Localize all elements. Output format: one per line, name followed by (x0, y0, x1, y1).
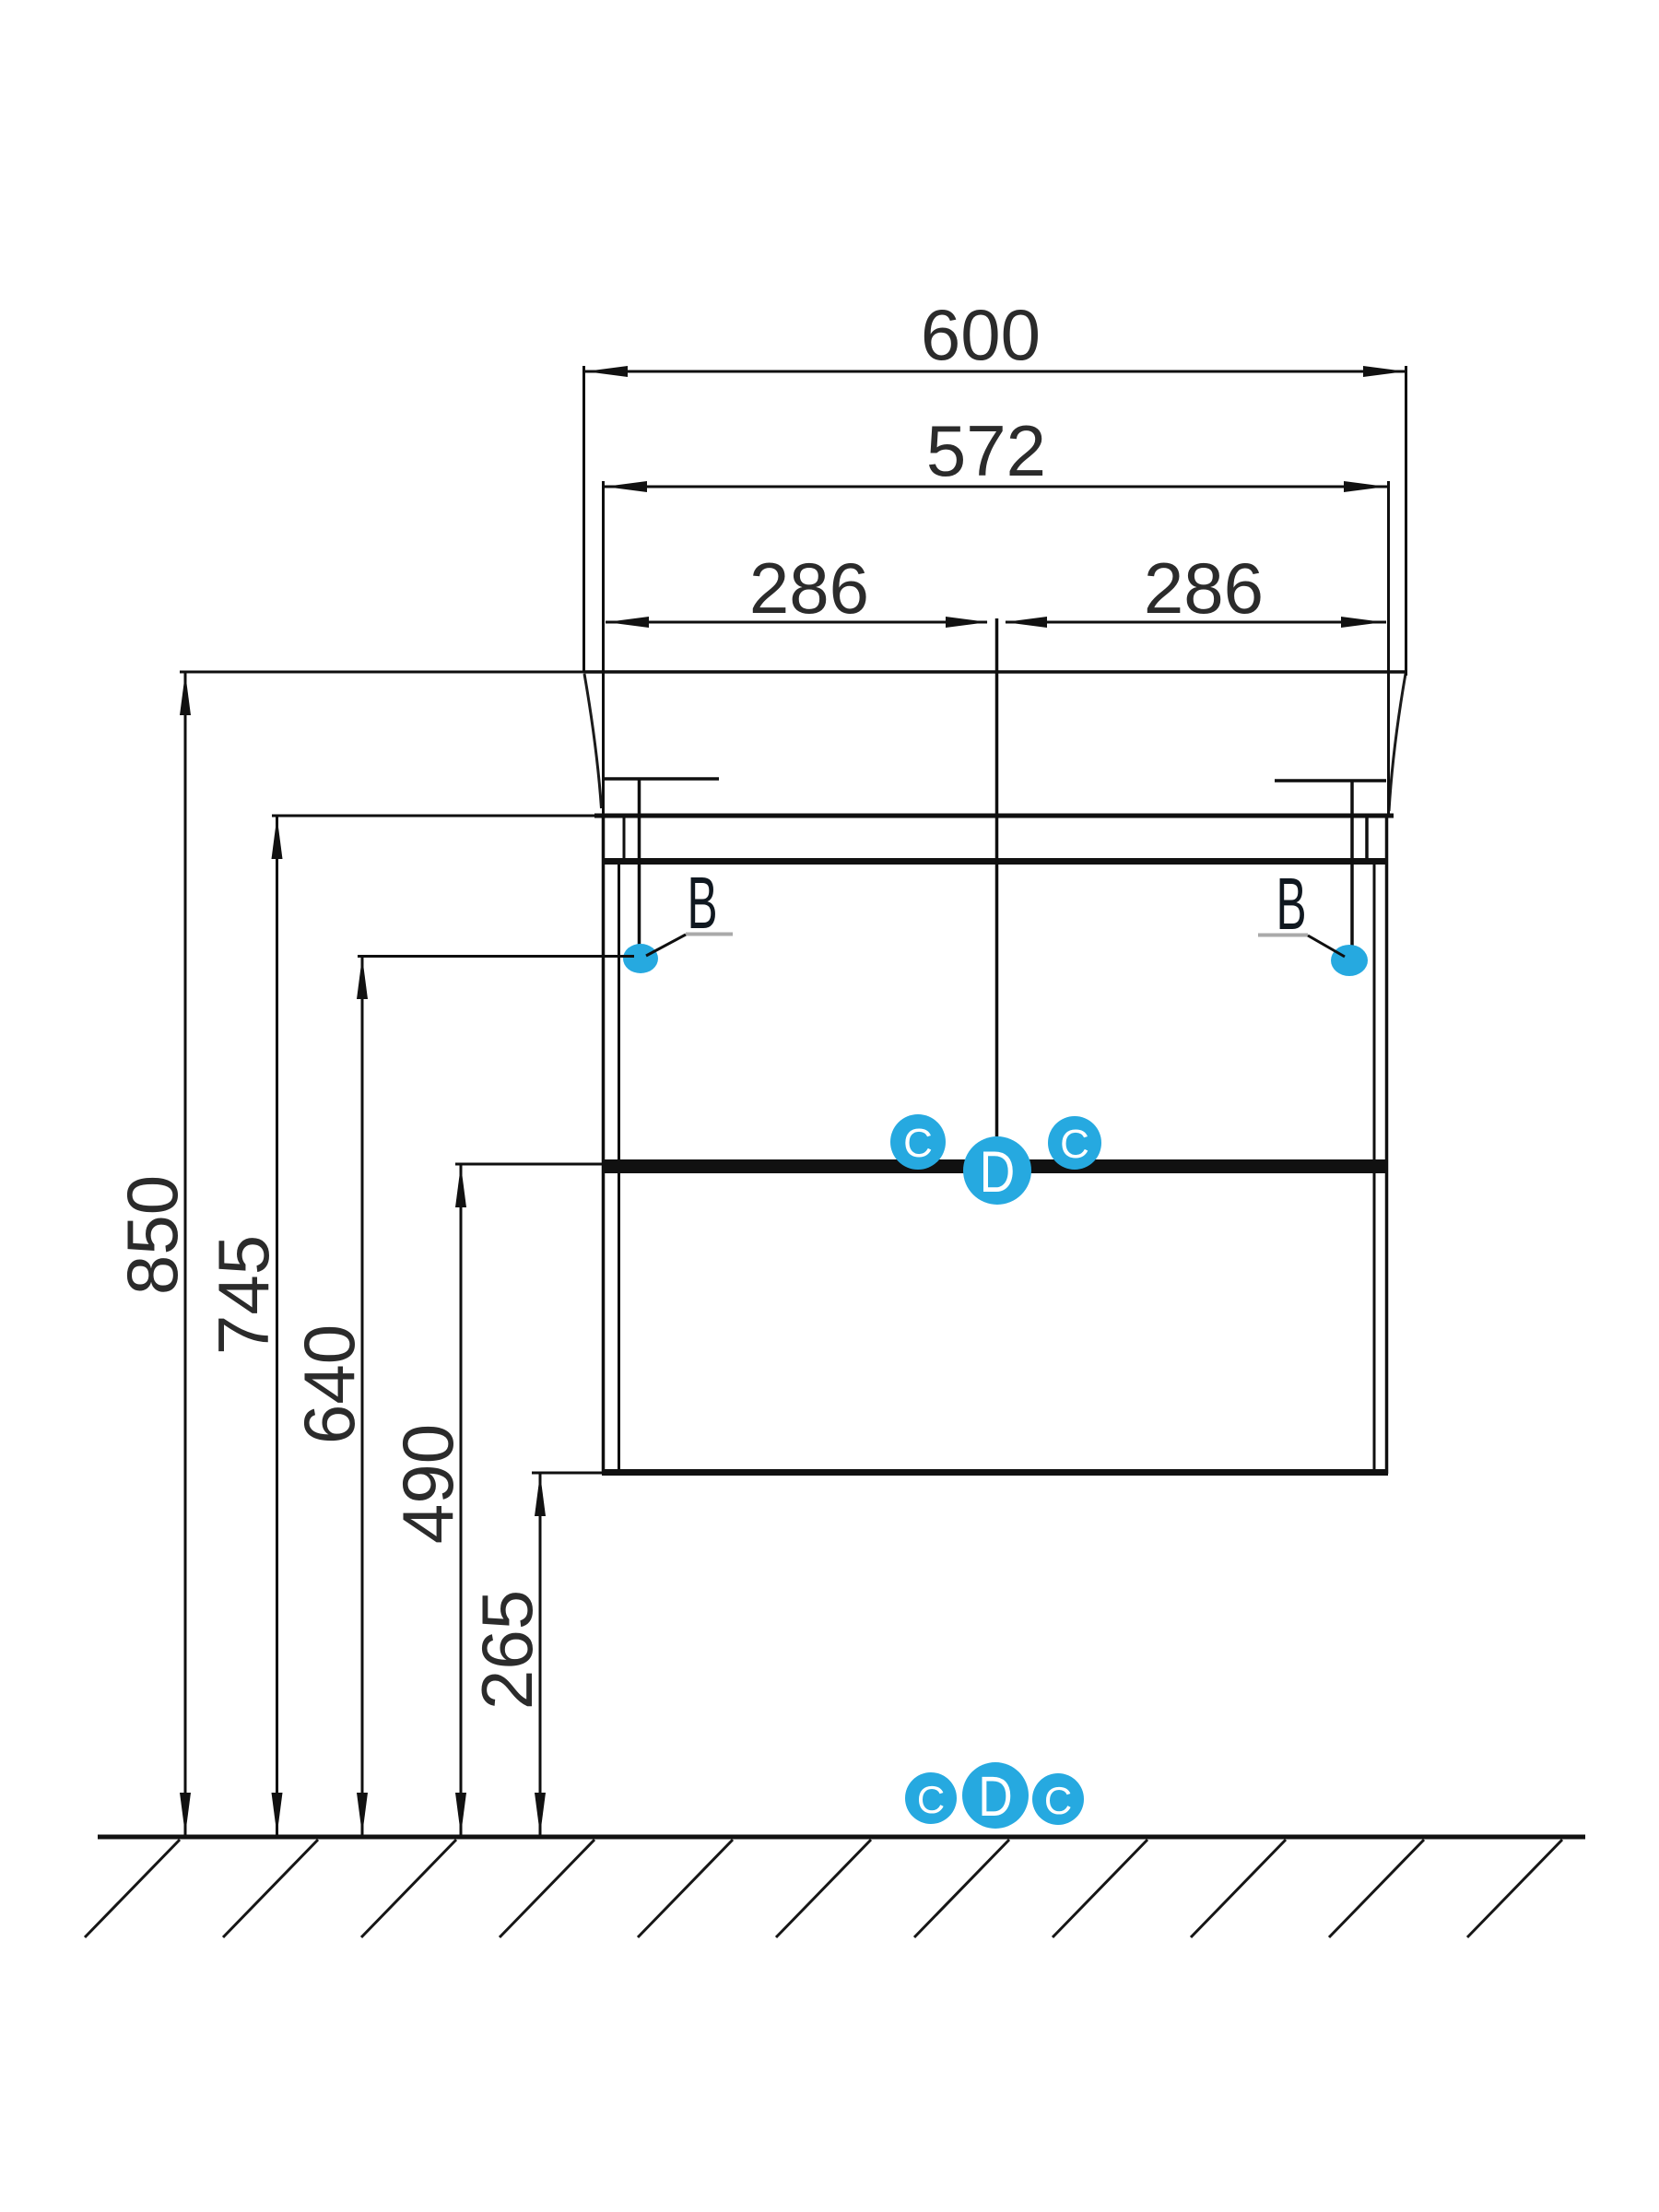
svg-text:C: C (903, 1121, 933, 1166)
svg-text:572: 572 (926, 410, 1046, 491)
svg-text:286: 286 (749, 547, 869, 629)
svg-text:D: D (978, 1765, 1012, 1828)
svg-text:640: 640 (288, 1324, 370, 1444)
svg-text:600: 600 (921, 294, 1041, 375)
svg-text:D: D (980, 1140, 1016, 1205)
svg-text:C: C (1060, 1122, 1089, 1167)
svg-text:265: 265 (466, 1590, 547, 1710)
svg-text:C: C (917, 1778, 945, 1821)
svg-text:850: 850 (112, 1175, 193, 1295)
svg-text:C: C (1044, 1779, 1072, 1822)
svg-text:490: 490 (387, 1424, 468, 1544)
svg-text:286: 286 (1144, 547, 1264, 629)
svg-text:745: 745 (203, 1235, 284, 1355)
